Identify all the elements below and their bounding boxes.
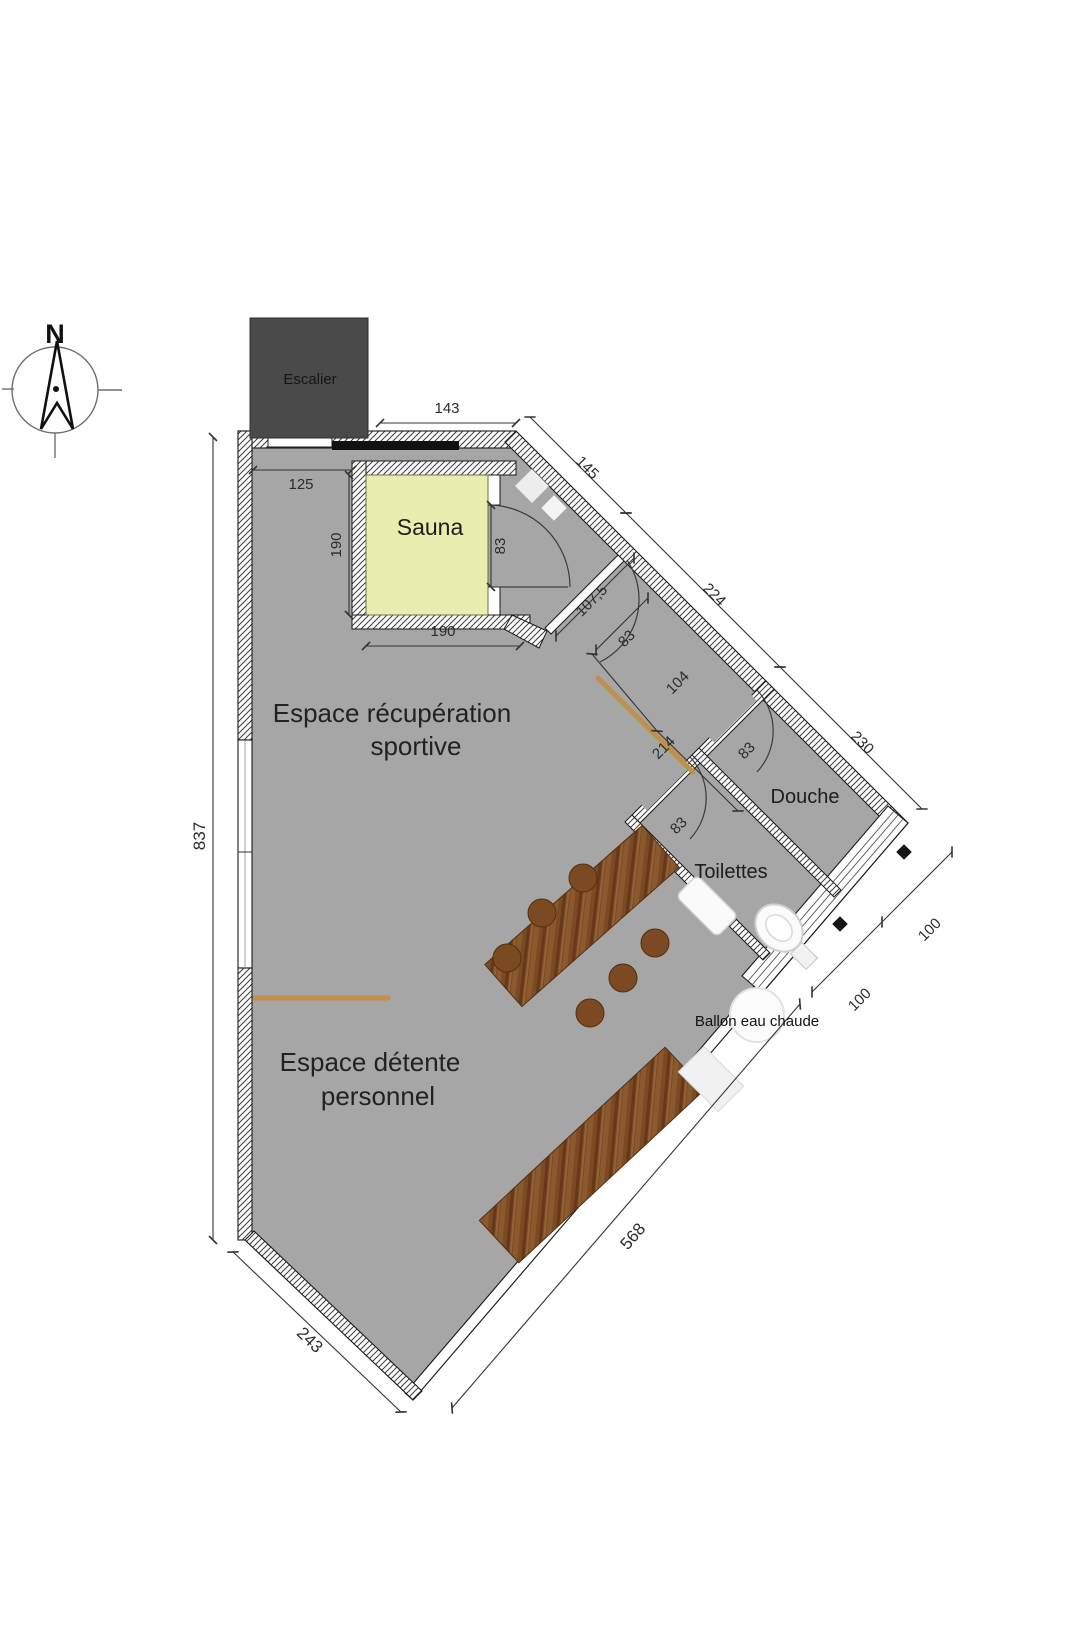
stool-3 [493,944,521,972]
sauna-label: Sauna [397,514,464,540]
wall-stop-marker-1 [896,844,912,860]
north-arrow-icon [41,341,73,429]
stool-6 [576,999,604,1027]
floor-plan-page: N [0,0,1080,1627]
floor-plan-drawing: N [0,0,1080,1627]
detente-label-line1: Espace détente [280,1047,461,1077]
toilettes-label: Toilettes [694,861,767,883]
stair-door-sill [332,441,459,450]
sauna-wall-right-lower [488,587,500,615]
dim-label-230: 230 [847,728,877,758]
sauna-wall-right-upper [488,475,500,505]
dim-label-243: 243 [293,1323,327,1356]
stool-2 [528,899,556,927]
compass-rose: N [2,319,122,458]
dim-label-190-bottom: 190 [430,623,455,640]
sauna-floor [366,475,488,615]
sauna-wall-top [352,461,516,475]
detente-label-line2: personnel [321,1081,435,1111]
stairwell: Escalier [250,318,368,438]
compass-center-dot [53,386,59,392]
north-label: N [45,319,65,349]
dim-label-568: 568 [616,1219,649,1253]
recuperation-label-line2: sportive [370,731,461,761]
dim-label-83-sauna: 83 [492,538,509,555]
dim-label-837: 837 [190,822,209,850]
wall-stop-marker-2 [832,916,848,932]
dim-line-100-douche [882,852,952,922]
escalier-label: Escalier [283,371,336,388]
dim-label-143: 143 [434,400,459,417]
ballon-label: Ballon eau chaude [695,1013,819,1030]
douche-label: Douche [771,786,840,808]
stool-1 [569,864,597,892]
dim-label-145: 145 [572,453,602,483]
dim-label-190-left: 190 [328,532,345,557]
wall-west-upper [238,431,252,740]
stool-5 [609,964,637,992]
stool-4 [641,929,669,957]
dim-label-100-toilettes: 100 [845,985,875,1015]
dim-label-100-douche: 100 [915,915,945,945]
sauna-wall-left [352,461,366,629]
dim-label-125: 125 [288,476,313,493]
recuperation-label-line1: Espace récupération [273,698,511,728]
wall-west-lower [238,968,252,1240]
dim-label-224: 224 [699,580,729,610]
dim-line-100-toilettes [812,922,882,992]
